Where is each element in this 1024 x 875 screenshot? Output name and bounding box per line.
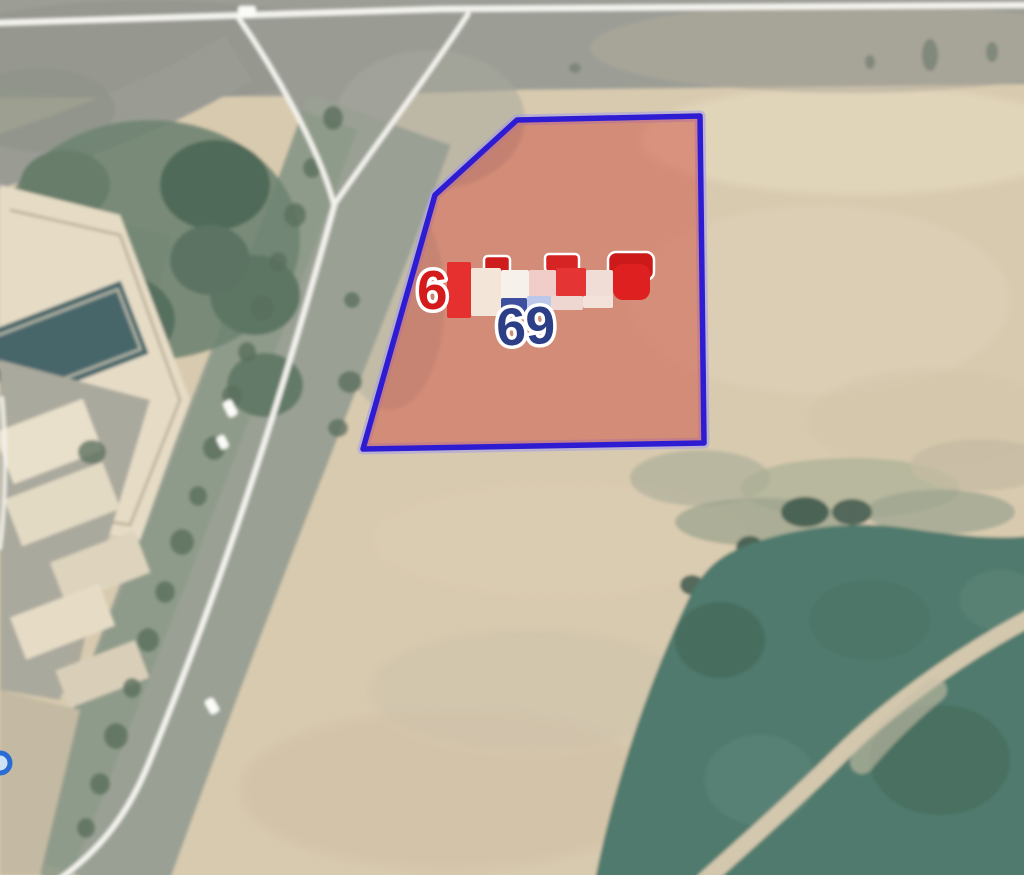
- mosaic-block: [447, 262, 471, 318]
- mosaic-block: [529, 270, 556, 298]
- mosaic-block: [501, 270, 529, 300]
- mosaic-block: [551, 296, 583, 310]
- map-edge-marker[interactable]: [0, 753, 10, 773]
- mosaic-block: [556, 268, 586, 296]
- map-viewport[interactable]: 6 69: [0, 0, 1024, 875]
- block-number-label: 69: [495, 296, 557, 358]
- mosaic-block: [613, 264, 650, 300]
- mosaic-block: [583, 296, 613, 308]
- mosaic-block: [586, 270, 613, 298]
- parcel-number-label: 6: [417, 259, 448, 321]
